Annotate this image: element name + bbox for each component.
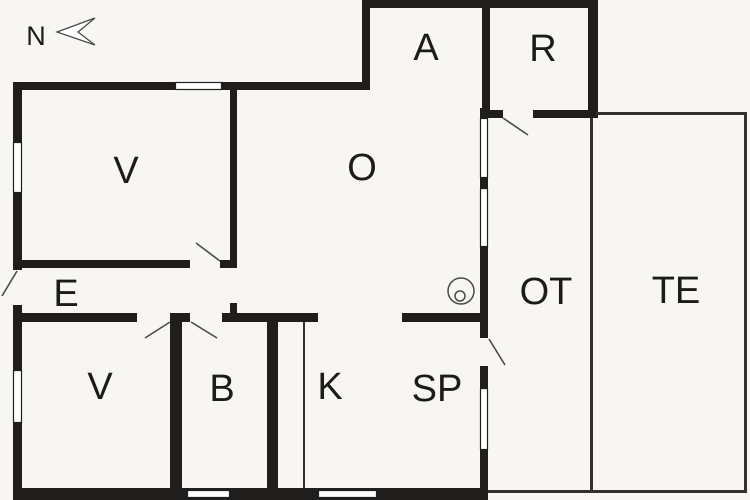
wall-segment — [13, 488, 488, 500]
wall-segment — [402, 313, 488, 322]
window-symbol — [176, 83, 222, 90]
window-symbol — [319, 491, 377, 498]
wall-segment — [588, 0, 598, 118]
wall-segment — [220, 260, 237, 268]
wall-segment — [267, 322, 278, 488]
door-leaf-v-upper — [196, 243, 220, 261]
wall-segment — [222, 313, 318, 322]
window-symbol — [188, 491, 230, 498]
wall-segment — [13, 305, 22, 370]
door-leaf-v-lower — [145, 322, 170, 338]
wall-segment — [230, 303, 237, 313]
floorplan-drawing: NARVOEOTTEVBKSP — [0, 0, 750, 500]
window-symbol — [481, 119, 488, 178]
room-label-o: O — [347, 147, 377, 189]
floorplan-canvas: NARVOEOTTEVBKSP — [0, 0, 750, 500]
wall-segment — [480, 178, 488, 188]
wall-segment — [22, 260, 190, 268]
room-label-te: TE — [652, 270, 701, 312]
room-label-sp: SP — [412, 368, 463, 410]
door-leaf-r — [503, 118, 528, 135]
window-symbol — [14, 371, 22, 423]
room-label-v-upper: V — [113, 150, 139, 192]
north-arrow-icon — [57, 18, 95, 45]
wall-segment — [222, 82, 370, 90]
wall-segment — [480, 108, 488, 118]
stove-icon-inner — [455, 291, 465, 301]
window-symbol — [481, 189, 488, 247]
wall-segment — [22, 313, 137, 322]
door-leaf-b — [191, 322, 217, 338]
wall-segment — [362, 0, 598, 8]
wall-segment — [533, 110, 598, 118]
window-symbol — [481, 389, 488, 450]
north-label: N — [26, 21, 46, 51]
room-label-a: A — [413, 27, 439, 69]
room-label-ot: OT — [520, 271, 573, 313]
room-label-b: B — [209, 368, 234, 410]
wall-segment — [170, 322, 182, 488]
windows-layer — [14, 83, 488, 498]
room-label-e: E — [53, 273, 78, 315]
thin-wall-segment — [744, 112, 747, 493]
wall-segment — [480, 450, 488, 500]
thin-wall-segment — [590, 118, 593, 493]
wall-segment — [13, 82, 175, 90]
thin-wall-segment — [303, 322, 305, 488]
room-label-r: R — [529, 28, 556, 70]
walls-layer — [13, 0, 598, 500]
wall-segment — [482, 8, 490, 110]
room-label-v-lower: V — [87, 366, 113, 408]
door-leaves-layer — [2, 118, 528, 365]
thin-wall-segment — [596, 112, 746, 115]
wall-segment — [362, 0, 370, 90]
entrance-door-leaf — [2, 271, 17, 296]
window-symbol — [14, 143, 22, 193]
wall-segment — [170, 313, 190, 322]
door-leaf-sp-ot — [489, 339, 505, 365]
thin-wall-segment — [593, 490, 746, 493]
wall-segment — [230, 90, 237, 268]
wall-segment — [13, 82, 22, 142]
thin-wall-segment — [488, 490, 590, 493]
room-label-k: K — [317, 366, 342, 408]
wall-segment — [13, 193, 22, 270]
wall-segment — [480, 366, 488, 388]
wall-segment — [480, 247, 488, 338]
